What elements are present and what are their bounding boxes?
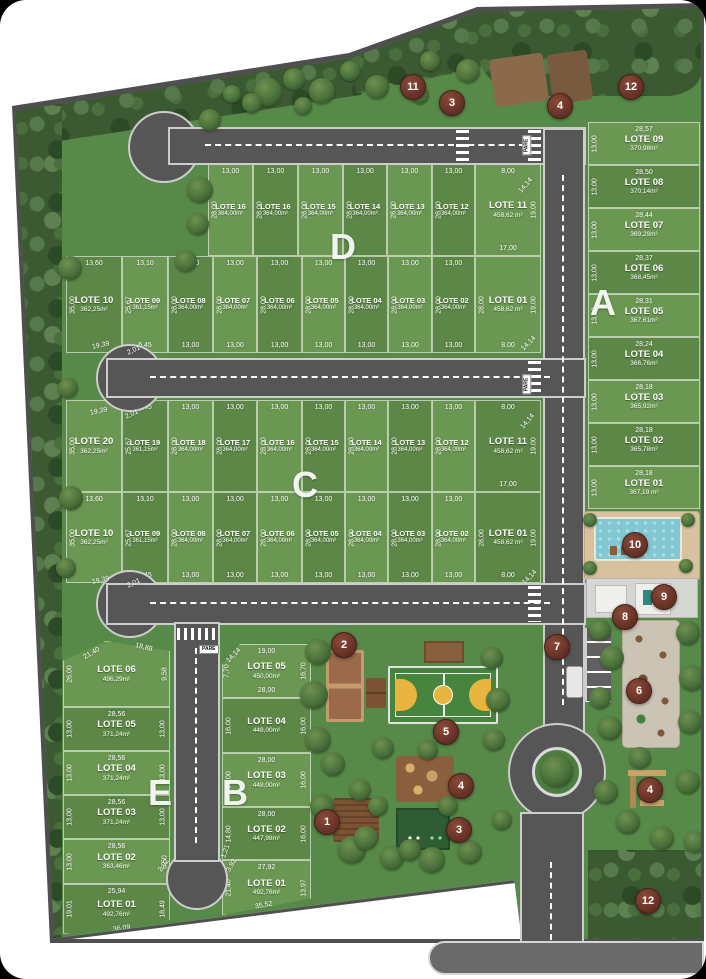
lot-area: 364,00m² <box>354 538 379 545</box>
site-area: 28,5713,00LOTE 09370,98m²28,5013,00LOTE … <box>0 0 706 979</box>
lot-E: 28,5613,0013,00LOTE 05371,24m² <box>63 707 170 751</box>
lot-area: 362,25m² <box>80 306 107 313</box>
dim-left: 13,00 <box>591 178 598 196</box>
lot-area: 366,76m² <box>630 360 657 367</box>
lot-area: 364,00m² <box>178 447 203 454</box>
tree-icon <box>340 61 360 81</box>
tree-icon <box>294 97 312 115</box>
tree-icon <box>56 558 76 578</box>
lot-D: 13,0013,0028,00LOTE 07364,00m² <box>213 256 257 353</box>
tree-icon <box>589 687 611 709</box>
dim-right: 19,00 <box>531 201 538 219</box>
lot-name: LOTE 13 <box>394 203 424 211</box>
dim-front: 13,60 <box>85 260 103 267</box>
lot-area: 448,00m² <box>253 782 280 789</box>
dim-left: 13,00 <box>591 479 598 497</box>
dim-front: 8,00 <box>501 404 515 411</box>
lot-name: LOTE 13 <box>395 439 425 447</box>
lot-name: LOTE 06 <box>625 264 664 274</box>
dim-back: 13,00 <box>401 572 419 579</box>
lot-area: 361,15m² <box>132 538 157 545</box>
dim-right: 19,00 <box>531 437 538 455</box>
dim-front: 13,00 <box>401 496 419 503</box>
lot-C: 13,0028,00LOTE 13364,00m² <box>388 400 432 492</box>
tree-icon <box>365 75 389 99</box>
dim-back: 13,00 <box>271 342 289 349</box>
lot-A: 28,4413,00LOTE 07369,29m² <box>588 208 700 251</box>
dim-extra: 35,52 <box>255 901 273 911</box>
dim-front: 13,00 <box>312 168 330 175</box>
dim-front: 13,00 <box>358 496 376 503</box>
lot-name: LOTE 16 <box>260 203 290 211</box>
dim-left: 28,00 <box>171 437 178 455</box>
lot-name: LOTE 02 <box>97 853 136 863</box>
poi-marker-9: 9 <box>651 584 677 610</box>
dim-left: 28,00 <box>216 529 223 547</box>
lot-area: 362,25m² <box>80 539 107 546</box>
dim-left: 16,00 <box>225 717 232 735</box>
dim-front: 28,56 <box>108 755 126 762</box>
lot-name: LOTE 01 <box>489 296 528 306</box>
block-letter-A: A <box>590 282 616 324</box>
lot-name: LOTE 14 <box>350 203 380 211</box>
lot-area: 364,00m² <box>397 305 422 312</box>
tree-icon <box>679 559 693 573</box>
dim-front: 28,00 <box>258 811 276 818</box>
lot-area: 362,25m² <box>80 448 107 455</box>
tree-icon <box>420 51 440 71</box>
lot-C: 13,0028,00LOTE 12364,00m² <box>432 400 475 492</box>
dim-left: 13,00 <box>66 764 73 782</box>
lot-name: LOTE 16 <box>264 439 294 447</box>
lot-name: LOTE 04 <box>247 717 286 727</box>
dim-front: 28,18 <box>635 384 653 391</box>
lot-C: 13,0028,00LOTE 14364,00m² <box>345 400 388 492</box>
playground-top-a <box>489 52 549 107</box>
lot-area: 364,00m² <box>222 305 247 312</box>
lot-area: 364,00m² <box>397 211 422 218</box>
dim-left: 28,00 <box>301 201 308 219</box>
dim-front: 28,00 <box>258 757 276 764</box>
lot-name: LOTE 01 <box>489 529 528 539</box>
clubhouse-building <box>586 578 698 618</box>
dim-front: 25,94 <box>108 888 126 895</box>
dim-front: 28,31 <box>635 298 653 305</box>
dim-back: 13,00 <box>182 342 200 349</box>
tree-icon <box>418 740 438 760</box>
dim-front: 28,44 <box>635 212 653 219</box>
tree-icon <box>492 810 512 830</box>
lot-area: 367,61m² <box>630 317 657 324</box>
lot-name: LOTE 16 <box>215 203 245 211</box>
lot-area: 364,00m² <box>178 538 203 545</box>
dim-front: 28,56 <box>108 843 126 850</box>
dim-right: 9,58 <box>162 667 169 681</box>
centerline-central <box>195 648 197 843</box>
lot-name: LOTE 15 <box>308 439 338 447</box>
dim-front: 13,00 <box>445 260 463 267</box>
dim-front: 13,00 <box>271 496 289 503</box>
lot-area: 364,00m² <box>267 447 292 454</box>
dim-right: 18,49 <box>160 900 167 918</box>
lot-area: 363,46m² <box>103 863 130 870</box>
lot-area: 496,29m² <box>103 676 130 683</box>
centerline-dc <box>150 376 550 378</box>
poi-marker-3: 3 <box>446 817 472 843</box>
lot-name: LOTE 03 <box>247 771 286 781</box>
dim-front: 13,00 <box>445 168 463 175</box>
dim-front: 13,10 <box>136 260 154 267</box>
lot-D: 13,0013,0028,00LOTE 06364,00m² <box>257 256 302 353</box>
lot-area: 364,00m² <box>222 447 247 454</box>
tree-icon <box>175 250 197 272</box>
lot-area: 364,00m² <box>441 538 466 545</box>
tree-icon <box>399 839 421 861</box>
centerline-top <box>205 144 535 146</box>
dim-left: 28,00 <box>391 437 398 455</box>
dim-front: 28,56 <box>108 799 126 806</box>
centerline-entry <box>550 862 552 940</box>
lot-area: 364,00m² <box>441 447 466 454</box>
tree-icon <box>456 59 480 83</box>
tree-icon <box>223 85 241 103</box>
dim-front: 13,00 <box>182 496 200 503</box>
site-plan-canvas: 28,5713,00LOTE 09370,98m²28,5013,00LOTE … <box>0 0 706 979</box>
lot-area: 492,76m² <box>103 911 130 918</box>
poi-marker-8: 8 <box>612 604 638 630</box>
tree-icon <box>321 752 345 776</box>
lot-name: LOTE 04 <box>97 764 136 774</box>
lot-area: 370,98m² <box>630 145 657 152</box>
perimeter-road <box>428 941 704 975</box>
dim-back: 13,00 <box>182 572 200 579</box>
lot-area: 365,92m² <box>630 403 657 410</box>
dim-left: 35,00 <box>69 529 76 547</box>
lot-area: 364,00m² <box>222 538 247 545</box>
dim-left: 28,00 <box>256 201 263 219</box>
dim-left: 13,00 <box>591 221 598 239</box>
dim-left: 13,00 <box>591 350 598 368</box>
bocce-court <box>424 641 464 663</box>
tree-icon <box>676 621 700 645</box>
sports-court <box>388 666 498 724</box>
dim-left: 28,00 <box>348 296 355 314</box>
sand-court <box>326 650 364 722</box>
lot-name: LOTE 01 <box>97 900 136 910</box>
tree-icon <box>58 256 82 280</box>
lot-area: 364,00m² <box>311 447 336 454</box>
crosswalk-central <box>177 628 217 640</box>
lot-area: 364,00m² <box>178 305 203 312</box>
dim-left: 28,00 <box>391 529 398 547</box>
tree-icon <box>187 177 213 203</box>
dim-left: 25,67 <box>125 437 132 455</box>
stop-sign: PARE <box>199 645 219 654</box>
lot-A: 28,1813,00LOTE 02365,78m² <box>588 423 700 466</box>
tree-icon <box>59 486 83 510</box>
dim-front: 13,00 <box>401 168 419 175</box>
dim-left: 13,00 <box>66 808 73 826</box>
centerline-right <box>562 175 564 705</box>
tree-icon <box>483 729 505 751</box>
tree-icon <box>354 826 378 850</box>
tree-icon <box>305 727 331 753</box>
lot-D: 13,0013,0028,00LOTE 03364,00m² <box>388 256 432 353</box>
dim-front: 13,00 <box>315 404 333 411</box>
tree-icon <box>349 779 371 801</box>
lot-area: 364,00m² <box>311 305 336 312</box>
dim-front: 28,18 <box>635 427 653 434</box>
lot-D: 13,0028,00LOTE 16364,00m² <box>253 164 298 256</box>
dim-left: 25,67 <box>125 296 132 314</box>
dim-left: 13,00 <box>591 393 598 411</box>
poi-marker-12: 12 <box>635 888 661 914</box>
lot-name: LOTE 06 <box>97 665 136 675</box>
dim-right: 16,70 <box>301 662 308 680</box>
dim-right: 16,00 <box>301 825 308 843</box>
lot-A: 28,5013,00LOTE 08370,14m² <box>588 165 700 208</box>
tree-icon <box>58 378 78 398</box>
lot-area: 367,19 m² <box>629 489 658 496</box>
lot-D: 13,0013,0028,00LOTE 05364,00m² <box>302 256 345 353</box>
dim-back: 17,00 <box>499 245 517 252</box>
dim-left: 28,00 <box>216 296 223 314</box>
dim-front: 8,00 <box>501 168 515 175</box>
dim-back: 28,00 <box>258 687 276 694</box>
dim-back: 13,00 <box>315 572 333 579</box>
lot-area: 492,76m² <box>253 889 280 896</box>
lot-area: 364,00m² <box>354 447 379 454</box>
lot-name: LOTE 01 <box>247 879 286 889</box>
lot-name: LOTE 10 <box>75 296 114 306</box>
lot-area: 361,15m² <box>132 305 157 312</box>
lot-name: LOTE 03 <box>625 393 664 403</box>
dim-front: 27,92 <box>258 864 276 871</box>
dim-front: 13,00 <box>401 404 419 411</box>
lot-B: 16,0016,00LOTE 04448,00m² <box>222 698 311 753</box>
dim-left: 13,00 <box>591 264 598 282</box>
dim-back: 13,00 <box>226 572 244 579</box>
lot-area: 458,62 m² <box>493 539 522 546</box>
lot-B: 28,0014,8016,00LOTE 02447,98m² <box>222 807 311 860</box>
playground-central <box>396 756 454 802</box>
block-letter-E: E <box>148 772 172 814</box>
dim-left: 13,00 <box>591 135 598 153</box>
lot-area: 364,00m² <box>263 211 288 218</box>
dim-left: 19,01 <box>66 900 73 918</box>
dim-front: 19,00 <box>258 648 276 655</box>
lot-name: LOTE 18 <box>175 439 205 447</box>
dim-front: 13,00 <box>226 404 244 411</box>
tree-icon <box>438 796 458 816</box>
poi-marker-2: 2 <box>331 632 357 658</box>
lot-name: LOTE 05 <box>97 720 136 730</box>
lot-name: LOTE 19 <box>130 439 160 447</box>
lot-name: LOTE 14 <box>351 439 381 447</box>
dim-left: 28,00 <box>435 201 442 219</box>
lot-area: 364,00m² <box>311 538 336 545</box>
poi-marker-6: 6 <box>626 678 652 704</box>
game-tables <box>366 678 386 708</box>
dim-front: 13,00 <box>356 168 374 175</box>
lot-area: 361,15m² <box>132 447 157 454</box>
dim-left: 35,00 <box>69 296 76 314</box>
dim-left: 28,00 <box>348 437 355 455</box>
dim-left: 28,00 <box>171 529 178 547</box>
lot-name: LOTE 05 <box>625 307 664 317</box>
lot-name: LOTE 17 <box>220 439 250 447</box>
dim-front: 13,00 <box>271 260 289 267</box>
poi-marker-4: 4 <box>547 93 573 119</box>
dim-left: 28,00 <box>435 529 442 547</box>
dim-front: 28,24 <box>635 341 653 348</box>
dim-front: 13,00 <box>445 496 463 503</box>
dim-left: 28,00 <box>305 437 312 455</box>
lot-area: 364,00m² <box>441 305 466 312</box>
lot-A: 28,1813,00LOTE 03365,92m² <box>588 380 700 423</box>
lot-E: 26,009,58LOTE 06496,29m² <box>63 641 170 707</box>
lot-name: LOTE 20 <box>75 437 114 447</box>
lot-name: LOTE 05 <box>247 662 286 672</box>
dim-back: 13,00 <box>358 572 376 579</box>
tree-icon <box>309 78 335 104</box>
dim-front: 13,10 <box>136 496 154 503</box>
poi-marker-4: 4 <box>448 773 474 799</box>
dim-back: 13,00 <box>358 342 376 349</box>
dim-left: 28,00 <box>305 529 312 547</box>
lot-D: 13,0028,00LOTE 12364,00m² <box>432 164 475 256</box>
tree-icon <box>583 513 597 527</box>
dim-back: 13,00 <box>226 342 244 349</box>
lot-D: 13,0013,0028,00LOTE 04364,00m² <box>345 256 388 353</box>
lot-name: LOTE 08 <box>625 178 664 188</box>
road-ceb <box>106 583 586 625</box>
dim-front: 13,00 <box>358 260 376 267</box>
tree-icon <box>598 716 622 740</box>
lot-name: LOTE 03 <box>97 808 136 818</box>
dim-back: 13,00 <box>315 342 333 349</box>
road-dc <box>106 358 586 398</box>
dim-front: 13,00 <box>226 496 244 503</box>
lot-D: 13,0028,00LOTE 13364,00m² <box>387 164 432 256</box>
dim-left: 28,00 <box>348 529 355 547</box>
dim-back: 13,00 <box>401 342 419 349</box>
tree-icon <box>594 780 618 804</box>
tree-icon <box>368 796 388 816</box>
lot-name: LOTE 02 <box>247 825 286 835</box>
dim-left: 28,00 <box>390 201 397 219</box>
dim-left: 28,00 <box>216 437 223 455</box>
dim-left: 13,00 <box>66 720 73 738</box>
tree-icon <box>372 737 394 759</box>
dim-right: 13,00 <box>160 720 167 738</box>
tree-icon <box>242 93 262 113</box>
tree-icon <box>681 513 695 527</box>
lot-area: 371,24m² <box>103 731 130 738</box>
block-letter-C: C <box>292 464 318 506</box>
lot-A: 28,5713,00LOTE 09370,98m² <box>588 122 700 165</box>
dim-front: 13,00 <box>267 168 285 175</box>
tree-icon <box>616 810 640 834</box>
dim-left: 25,67 <box>125 529 132 547</box>
crosswalk-ceb <box>528 586 541 622</box>
tree-icon <box>583 561 597 575</box>
tree-icon <box>678 710 702 734</box>
dim-right: 19,00 <box>531 296 538 314</box>
lot-D: 13,0028,00LOTE 16364,00m² <box>208 164 253 256</box>
lot-area: 364,00m² <box>354 305 379 312</box>
lot-name: LOTE 02 <box>625 436 664 446</box>
dim-back: 13,00 <box>445 342 463 349</box>
dim-back: 17,00 <box>499 481 517 488</box>
dim-front: 13,00 <box>226 260 244 267</box>
tree-icon <box>458 840 482 864</box>
crosswalk-top-mid <box>456 130 469 162</box>
dim-left: 28,00 <box>435 437 442 455</box>
dim-left: 26,00 <box>66 665 73 683</box>
dim-front: 13,00 <box>358 404 376 411</box>
lot-name: LOTE 10 <box>75 529 114 539</box>
tree-icon <box>650 826 674 850</box>
dim-back: 8,00 <box>501 342 515 349</box>
dim-left: 35,00 <box>69 437 76 455</box>
court-center-circle <box>433 685 453 705</box>
lot-C: 13,0013,0028,00LOTE 03364,00m² <box>388 492 432 583</box>
lot-area: 368,45m² <box>630 274 657 281</box>
lot-area: 364,00m² <box>397 538 422 545</box>
roundabout-tree-icon <box>541 755 573 787</box>
dim-front: 13,00 <box>271 404 289 411</box>
lot-area: 458,62 m² <box>493 448 522 455</box>
tree-icon <box>283 68 305 90</box>
poi-marker-5: 5 <box>433 719 459 745</box>
dim-left: 28,00 <box>260 529 267 547</box>
tree-icon <box>300 681 328 709</box>
poi-marker-3: 3 <box>439 90 465 116</box>
poi-marker-11: 11 <box>400 74 426 100</box>
block-letter-D: D <box>330 226 356 268</box>
entry-road <box>520 812 584 952</box>
dim-front: 13,00 <box>222 168 240 175</box>
dim-left: 13,00 <box>66 853 73 871</box>
lot-area: 447,98m² <box>253 835 280 842</box>
lot-name: LOTE 15 <box>305 203 335 211</box>
dim-left: 28,00 <box>435 296 442 314</box>
tree-icon <box>199 109 221 131</box>
lot-C: 13,0028,00LOTE 18364,00m² <box>168 400 213 492</box>
tree-icon <box>589 619 611 641</box>
lot-E: 28,5613,005,50LOTE 02363,46m² <box>63 839 170 884</box>
dim-front: 13,00 <box>401 260 419 267</box>
dim-left: 28,00 <box>260 437 267 455</box>
dim-back: 13,00 <box>445 572 463 579</box>
dim-back: 13,00 <box>271 572 289 579</box>
lot-area: 365,78m² <box>630 446 657 453</box>
bus-icon <box>566 666 583 698</box>
lot-area: 364,00m² <box>397 447 422 454</box>
lot-name: LOTE 09 <box>625 135 664 145</box>
dim-left: 28,00 <box>171 296 178 314</box>
poi-marker-12: 12 <box>618 74 644 100</box>
lot-area: 364,00m² <box>352 211 377 218</box>
tree-icon <box>187 213 209 235</box>
stop-sign: PARE <box>522 136 531 156</box>
lot-area: 364,00m² <box>218 211 243 218</box>
dim-back: 8,00 <box>501 572 515 579</box>
lot-name: LOTE 01 <box>625 479 664 489</box>
lot-area: 371,24m² <box>103 819 130 826</box>
lot-area: 364,00m² <box>308 211 333 218</box>
